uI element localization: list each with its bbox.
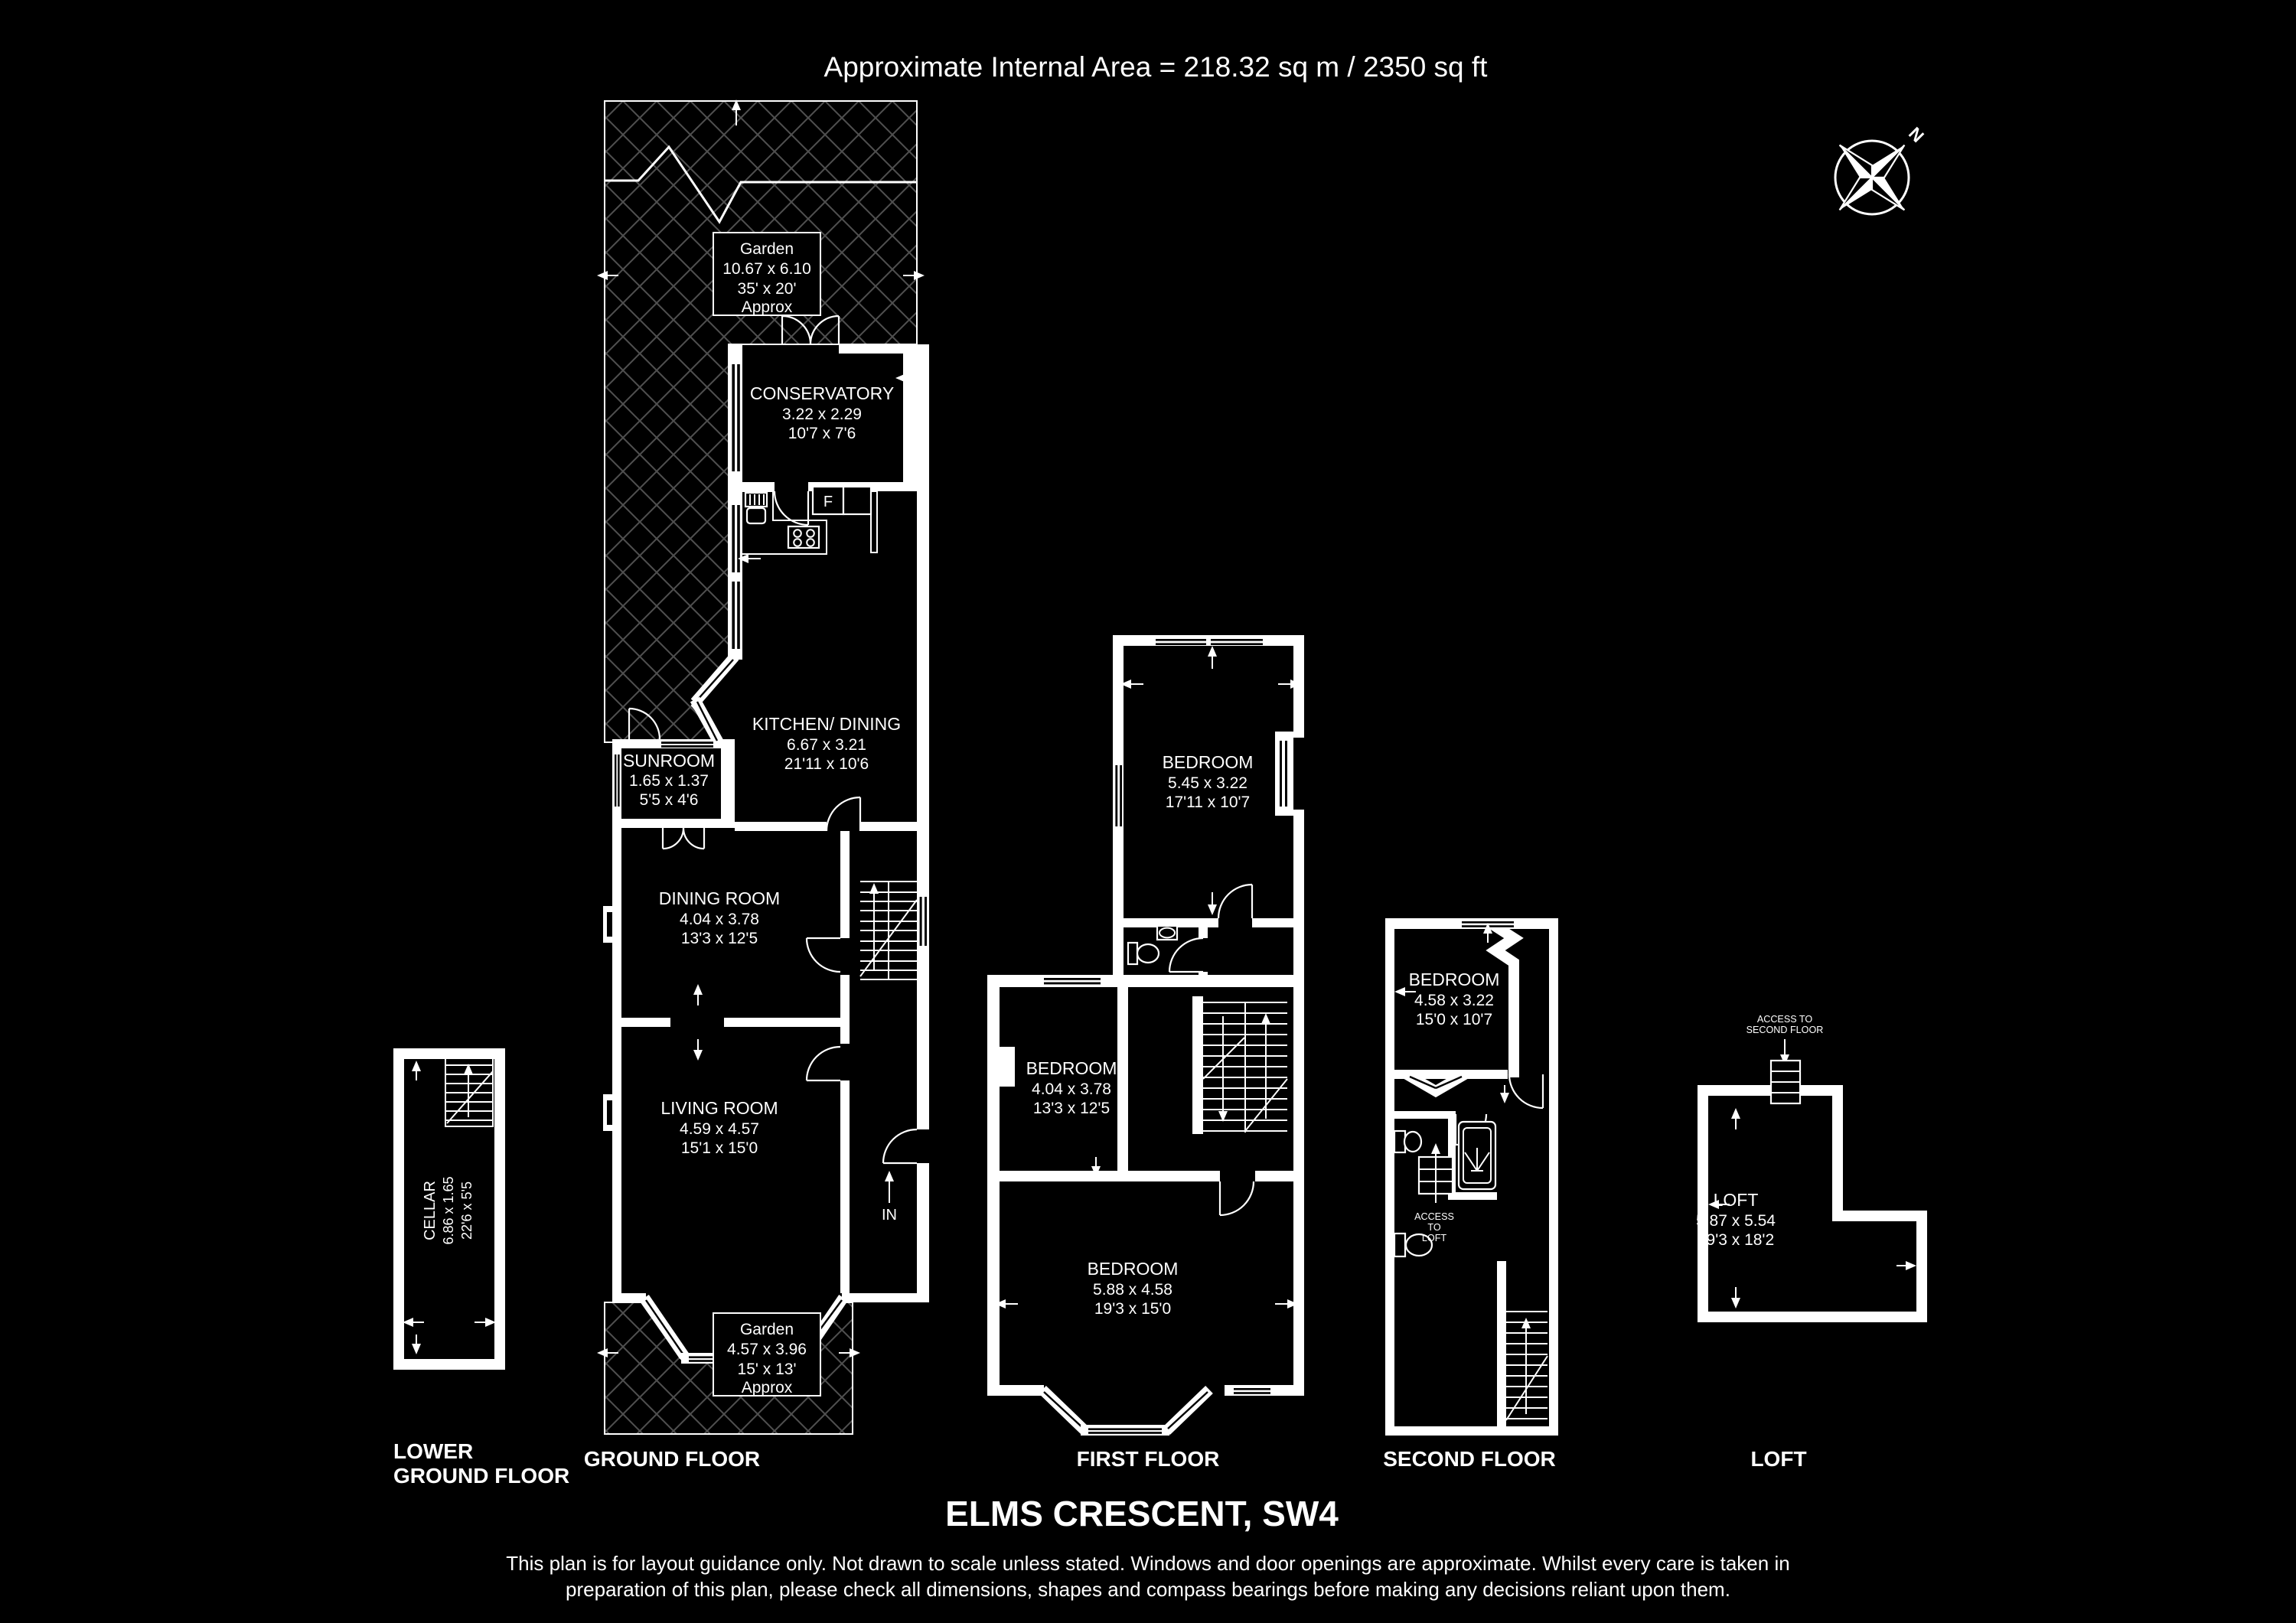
first-floor-bay-window — [1042, 1390, 1209, 1436]
kitchen-dining-label: KITCHEN/ DINING 6.67 x 3.21 21'11 x 10'6 — [752, 714, 901, 773]
hob-icon — [788, 526, 819, 548]
bedroom-first-rear-name: BEDROOM — [1163, 752, 1254, 772]
fridge-label: F — [823, 494, 833, 510]
sunroom-imperial: 5'5 x 4'6 — [640, 791, 699, 809]
sunroom-name: SUNROOM — [623, 751, 715, 771]
bedroom-first-front-name: BEDROOM — [1088, 1259, 1179, 1279]
address-title: ELMS CRESCENT, SW4 — [945, 1494, 1339, 1533]
bedroom-second-name: BEDROOM — [1409, 970, 1500, 989]
rear-garden-imperial: 35' x 20' — [738, 280, 797, 298]
first-floor-plan: BEDROOM 5.45 x 3.22 17'11 x 10'7 BEDROOM… — [987, 635, 1304, 1436]
front-garden-imperial: 15' x 13' — [738, 1361, 797, 1378]
access-loft-line3: LOFT — [1422, 1233, 1446, 1243]
compass-icon: N — [1835, 123, 1928, 214]
front-garden-name: Garden — [740, 1321, 794, 1338]
label-lower-ground-1: LOWER — [393, 1439, 473, 1463]
bedroom-second-metric: 4.58 x 3.22 — [1414, 992, 1494, 1009]
toilet-icon — [1128, 943, 1159, 964]
second-floor-plan: ACCESS TO LOFT BEDROOM 4.58 x 3.22 15'0 … — [1385, 918, 1558, 1436]
floor-labels: LOWER GROUND FLOOR GROUND FLOOR FIRST FL… — [393, 1439, 1807, 1488]
disclaimer-line1: This plan is for layout guidance only. N… — [506, 1552, 1789, 1575]
first-floor-doors — [1169, 885, 1254, 1215]
label-loft: LOFT — [1750, 1447, 1806, 1471]
access-loft-line2: TO — [1427, 1222, 1440, 1233]
basin2-icon — [1394, 1131, 1421, 1152]
living-room-metric: 4.59 x 4.57 — [680, 1120, 759, 1138]
bedroom-first-middle-name: BEDROOM — [1026, 1058, 1117, 1078]
rear-garden-area — [605, 101, 917, 742]
label-second: SECOND FLOOR — [1383, 1447, 1556, 1471]
rear-garden-label: Garden 10.67 x 6.10 35' x 20' Approx — [713, 233, 820, 316]
access-second-line2: SECOND FLOOR — [1746, 1025, 1824, 1035]
cellar-imperial: 22'6 x 5'5 — [459, 1181, 475, 1240]
bedroom-first-middle-imperial: 13'3 x 12'5 — [1033, 1100, 1110, 1117]
bedroom-second-label: BEDROOM 4.58 x 3.22 15'0 x 10'7 — [1409, 970, 1500, 1028]
rear-garden-metric: 10.67 x 6.10 — [722, 260, 811, 278]
cellar-name: CELLAR — [422, 1181, 439, 1240]
first-floor-bathroom — [1128, 926, 1177, 964]
disclaimer-line2: preparation of this plan, please check a… — [566, 1578, 1730, 1601]
living-room-label: LIVING ROOM 4.59 x 4.57 15'1 x 15'0 — [660, 1098, 778, 1157]
second-floor-stairs-icon — [1506, 1312, 1548, 1420]
fridge-icon: F — [813, 487, 871, 514]
shower-icon — [1459, 1122, 1495, 1189]
bedroom-first-front-metric: 5.88 x 4.58 — [1093, 1281, 1172, 1299]
bedroom-first-front-label: BEDROOM 5.88 x 4.58 19'3 x 15'0 — [1088, 1259, 1179, 1318]
kitchen-dining-name: KITCHEN/ DINING — [752, 714, 901, 734]
rear-garden-note: Approx — [742, 298, 793, 316]
dining-room-name: DINING ROOM — [659, 888, 780, 908]
front-garden-metric: 4.57 x 3.96 — [727, 1341, 807, 1358]
conservatory-name: CONSERVATORY — [750, 383, 894, 403]
bedroom-second-imperial: 15'0 x 10'7 — [1416, 1011, 1492, 1028]
living-room-name: LIVING ROOM — [660, 1098, 778, 1118]
loft-access-steps-icon: ACCESS TO LOFT — [1414, 1143, 1454, 1243]
loft-room-name: LOFT — [1714, 1190, 1759, 1210]
label-first: FIRST FLOOR — [1077, 1447, 1220, 1471]
conservatory-label: CONSERVATORY 3.22 x 2.29 10'7 x 7'6 — [750, 383, 894, 442]
basin-icon — [1157, 926, 1177, 940]
first-floor-stairs-icon — [1203, 1002, 1287, 1133]
label-lower-ground-2: GROUND FLOOR — [393, 1464, 569, 1488]
dining-room-metric: 4.04 x 3.78 — [680, 911, 759, 928]
bedroom-first-middle-label: BEDROOM 4.04 x 3.78 13'3 x 12'5 — [1026, 1058, 1117, 1117]
access-loft-line1: ACCESS — [1414, 1211, 1454, 1222]
rear-garden-name: Garden — [740, 240, 794, 258]
conservatory-imperial: 10'7 x 7'6 — [788, 425, 856, 442]
bedroom-first-middle-metric: 4.04 x 3.78 — [1032, 1080, 1111, 1098]
sunroom-metric: 1.65 x 1.37 — [629, 772, 709, 790]
compass-north-label: N — [1905, 123, 1928, 146]
living-room-imperial: 15'1 x 15'0 — [681, 1139, 758, 1157]
entrance-label: IN — [882, 1207, 897, 1224]
access-second-line1: ACCESS TO — [1757, 1014, 1813, 1025]
floorplan-page: Approximate Internal Area = 218.32 sq m … — [0, 0, 2296, 1623]
label-ground: GROUND FLOOR — [584, 1447, 760, 1471]
kitchen-dining-imperial: 21'11 x 10'6 — [784, 755, 869, 773]
kitchen-dining-metric: 6.67 x 3.21 — [787, 736, 866, 754]
entrance-arrow-icon: IN — [882, 1171, 897, 1224]
floorplan-canvas: Approximate Internal Area = 218.32 sq m … — [0, 0, 2296, 1623]
cellar-metric: 6.86 x 1.65 — [441, 1176, 456, 1244]
sunroom-label: SUNROOM 1.65 x 1.37 5'5 x 4'6 — [623, 751, 715, 809]
bedroom-first-front-imperial: 19'3 x 15'0 — [1094, 1300, 1171, 1318]
front-garden-note: Approx — [742, 1379, 793, 1396]
bedroom-first-rear-metric: 5.45 x 3.22 — [1168, 774, 1247, 792]
ground-floor-plan: F IN Garden 10.67 x 6.10 35' x 20' App — [597, 99, 929, 1434]
dining-room-imperial: 13'3 x 12'5 — [681, 930, 758, 947]
cellar-label: CELLAR 6.86 x 1.65 22'6 x 5'5 — [422, 1176, 475, 1244]
loft-room-metric: 5.87 x 5.54 — [1696, 1212, 1776, 1230]
bedroom-first-rear-label: BEDROOM 5.45 x 3.22 17'11 x 10'7 — [1163, 752, 1254, 811]
disclaimer: This plan is for layout guidance only. N… — [506, 1552, 1789, 1601]
ground-floor-stairs-icon — [860, 882, 917, 979]
loft-plan: ACCESS TO SECOND FLOOR LOFT 5.87 x 5.54 … — [1696, 1014, 1927, 1322]
lower-ground-floor-plan: CELLAR 6.86 x 1.65 22'6 x 5'5 — [393, 1048, 505, 1370]
bedroom-first-rear-imperial: 17'11 x 10'7 — [1166, 794, 1250, 811]
page-title: Approximate Internal Area = 218.32 sq m … — [824, 51, 1489, 83]
sink-icon — [745, 493, 767, 523]
loft-room-imperial: 19'3 x 18'2 — [1698, 1231, 1774, 1249]
conservatory-metric: 3.22 x 2.29 — [782, 406, 862, 423]
dining-room-label: DINING ROOM 4.04 x 3.78 13'3 x 12'5 — [659, 888, 780, 947]
front-garden-label: Garden 4.57 x 3.96 15' x 13' Approx — [713, 1313, 820, 1396]
